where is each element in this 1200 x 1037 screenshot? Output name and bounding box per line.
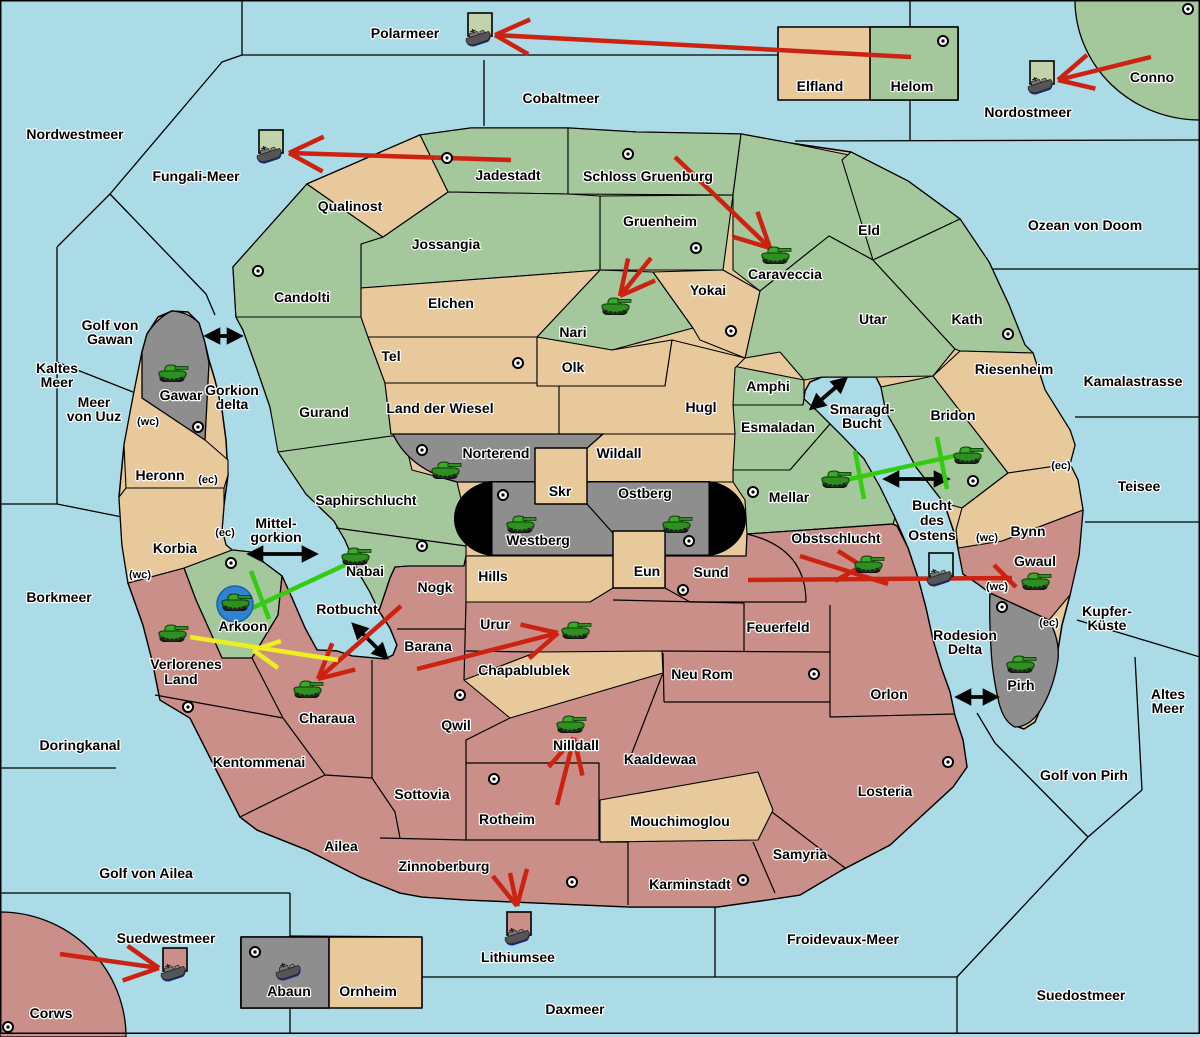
svg-text:Froidevaux-Meer: Froidevaux-Meer (787, 931, 900, 947)
svg-text:Land der Wiesel: Land der Wiesel (386, 400, 493, 416)
svg-text:Doringkanal: Doringkanal (40, 737, 121, 753)
svg-text:Gruenheim: Gruenheim (623, 213, 697, 229)
svg-text:Teisee: Teisee (1118, 478, 1161, 494)
svg-text:Kaaldewaa: Kaaldewaa (624, 751, 697, 767)
svg-text:Land: Land (164, 671, 197, 687)
svg-text:Chapablublek: Chapablublek (478, 662, 570, 678)
svg-text:Karminstadt: Karminstadt (649, 876, 731, 892)
svg-text:(wc): (wc) (986, 581, 1008, 593)
svg-text:Ornheim: Ornheim (339, 983, 397, 999)
svg-text:Candolti: Candolti (274, 289, 330, 305)
svg-text:Nordostmeer: Nordostmeer (984, 104, 1072, 120)
svg-text:(ec): (ec) (215, 527, 235, 539)
svg-text:Meer: Meer (41, 374, 74, 390)
svg-text:Heronn: Heronn (136, 467, 185, 483)
svg-text:Elchen: Elchen (428, 295, 474, 311)
svg-text:Saphirschlucht: Saphirschlucht (315, 492, 416, 508)
svg-text:Bynn: Bynn (1011, 523, 1046, 539)
svg-text:Skr: Skr (549, 483, 572, 499)
svg-text:Abaun: Abaun (267, 983, 311, 999)
svg-text:Norterend: Norterend (463, 445, 530, 461)
svg-text:Jossangia: Jossangia (412, 236, 481, 252)
svg-text:Sund: Sund (694, 564, 729, 580)
svg-text:Eun: Eun (634, 563, 660, 579)
svg-text:Elfland: Elfland (797, 78, 844, 94)
svg-text:Nabai: Nabai (346, 563, 384, 579)
svg-text:Obstschlucht: Obstschlucht (791, 530, 881, 546)
svg-text:(ec): (ec) (1039, 617, 1059, 629)
svg-text:Rotheim: Rotheim (479, 811, 535, 827)
svg-text:Gurand: Gurand (299, 404, 349, 420)
svg-text:Feuerfeld: Feuerfeld (746, 619, 809, 635)
svg-text:Corws: Corws (30, 1005, 73, 1021)
svg-text:Riesenheim: Riesenheim (975, 361, 1054, 377)
svg-text:Losteria: Losteria (858, 783, 913, 799)
svg-text:des: des (920, 512, 944, 528)
svg-text:Rotbucht: Rotbucht (316, 601, 378, 617)
svg-text:Golf von Pirh: Golf von Pirh (1040, 767, 1128, 783)
svg-text:Ailea: Ailea (324, 838, 358, 854)
svg-text:Urur: Urur (480, 616, 510, 632)
svg-text:Jadestadt: Jadestadt (475, 167, 541, 183)
svg-text:(wc): (wc) (976, 532, 998, 544)
svg-text:Polarmeer: Polarmeer (371, 25, 440, 41)
svg-text:Gawan: Gawan (87, 331, 133, 347)
svg-text:Daxmeer: Daxmeer (545, 1001, 605, 1017)
svg-text:Gawar: Gawar (160, 387, 203, 403)
svg-text:Golf von Ailea: Golf von Ailea (99, 865, 193, 881)
svg-text:Gwaul: Gwaul (1014, 553, 1056, 569)
svg-text:von Uuz: von Uuz (67, 408, 121, 424)
svg-text:Bucht: Bucht (912, 497, 952, 513)
svg-text:Lithiumsee: Lithiumsee (481, 949, 555, 965)
svg-text:Zinnoberburg: Zinnoberburg (399, 858, 490, 874)
svg-text:(ec): (ec) (198, 474, 218, 486)
svg-text:Amphi: Amphi (746, 378, 790, 394)
svg-text:Neu Rom: Neu Rom (671, 666, 732, 682)
svg-text:Kentommenai: Kentommenai (213, 754, 306, 770)
svg-text:Küste: Küste (1088, 617, 1127, 633)
svg-text:Suedostmeer: Suedostmeer (1037, 987, 1126, 1003)
svg-text:Conno: Conno (1130, 69, 1174, 85)
svg-text:Korbia: Korbia (153, 540, 198, 556)
svg-text:Bridon: Bridon (930, 407, 975, 423)
svg-text:Ostens: Ostens (908, 527, 956, 543)
svg-text:Bucht: Bucht (842, 415, 882, 431)
svg-text:Ostberg: Ostberg (618, 485, 672, 501)
svg-text:Caraveccia: Caraveccia (748, 266, 822, 282)
svg-text:Orlon: Orlon (870, 686, 907, 702)
svg-text:Eld: Eld (858, 222, 880, 238)
svg-text:Charaua: Charaua (299, 710, 355, 726)
svg-text:Verlorenes: Verlorenes (150, 656, 222, 672)
svg-text:Tel: Tel (381, 348, 400, 364)
svg-text:Qwil: Qwil (441, 717, 471, 733)
svg-text:gorkion: gorkion (250, 529, 301, 545)
svg-text:Esmaladan: Esmaladan (741, 419, 815, 435)
svg-text:Suedwestmeer: Suedwestmeer (117, 930, 216, 946)
svg-text:Hills: Hills (478, 568, 508, 584)
svg-text:Cobaltmeer: Cobaltmeer (522, 90, 600, 106)
svg-text:Pirh: Pirh (1007, 677, 1034, 693)
svg-text:Mouchimoglou: Mouchimoglou (630, 813, 730, 829)
svg-text:Arkoon: Arkoon (219, 618, 268, 634)
svg-text:Nordwestmeer: Nordwestmeer (26, 126, 124, 142)
svg-text:(wc): (wc) (137, 416, 159, 428)
svg-text:Nilldall: Nilldall (553, 737, 599, 753)
svg-text:Hugl: Hugl (685, 399, 716, 415)
svg-text:(ec): (ec) (1051, 460, 1071, 472)
svg-text:Fungali-Meer: Fungali-Meer (152, 168, 240, 184)
svg-text:delta: delta (216, 396, 249, 412)
svg-text:Nogk: Nogk (418, 579, 453, 595)
svg-text:(wc): (wc) (129, 569, 151, 581)
svg-text:Ozean von Doom: Ozean von Doom (1028, 217, 1142, 233)
svg-text:Kamalastrasse: Kamalastrasse (1084, 373, 1183, 389)
svg-text:Qualinost: Qualinost (318, 198, 383, 214)
svg-text:Nari: Nari (559, 324, 586, 340)
svg-text:Yokai: Yokai (690, 282, 726, 298)
svg-text:Barana: Barana (404, 638, 452, 654)
svg-text:Borkmeer: Borkmeer (26, 589, 92, 605)
svg-text:Helom: Helom (891, 78, 934, 94)
svg-text:Utar: Utar (859, 311, 888, 327)
svg-text:Olk: Olk (562, 359, 585, 375)
svg-text:Meer: Meer (1152, 700, 1185, 716)
svg-text:Delta: Delta (948, 641, 982, 657)
svg-text:Schloss Gruenburg: Schloss Gruenburg (583, 168, 713, 184)
svg-text:Sottovia: Sottovia (394, 786, 449, 802)
svg-text:Westberg: Westberg (506, 532, 570, 548)
svg-text:Samyria: Samyria (773, 846, 828, 862)
svg-text:Wildall: Wildall (597, 445, 642, 461)
svg-text:Mellar: Mellar (769, 489, 810, 505)
svg-text:Kath: Kath (951, 311, 982, 327)
